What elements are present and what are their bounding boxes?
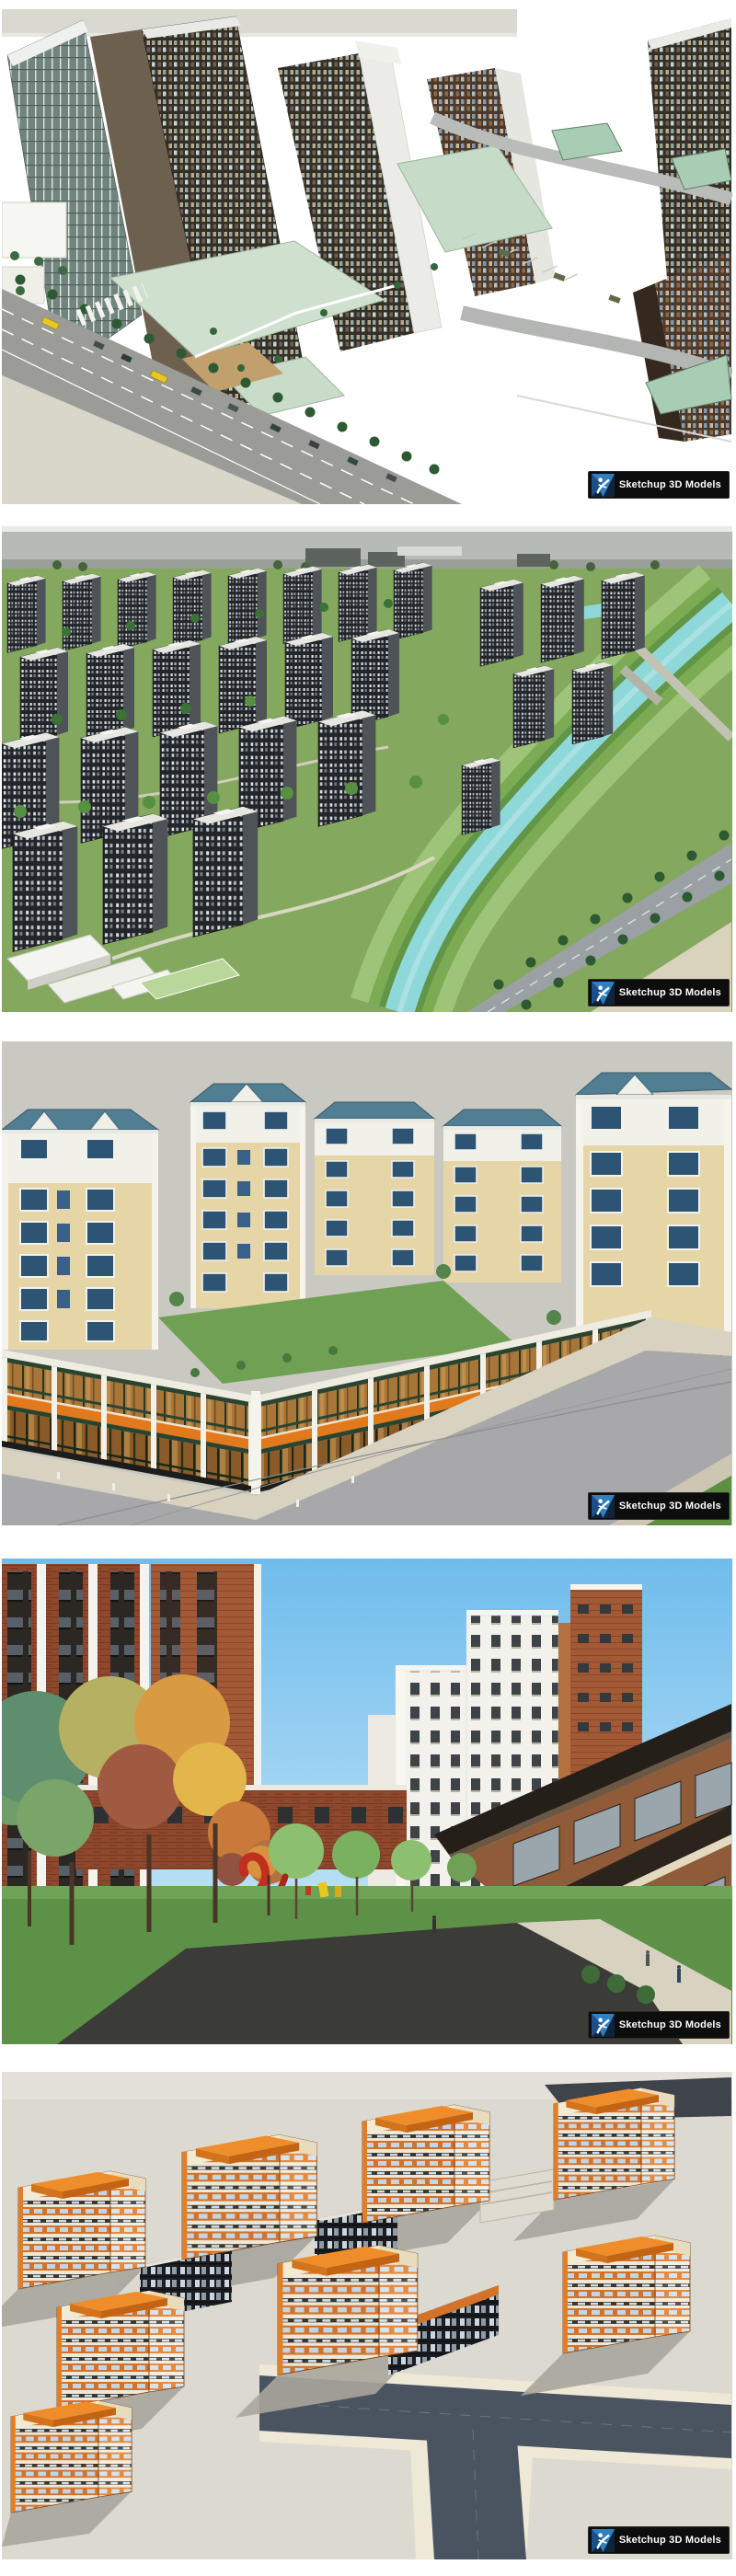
render-street-view-autumn[interactable]: Sketchup 3D Models <box>2 1558 732 2044</box>
apartment-building-mid2 <box>443 1110 561 1282</box>
apartment-building-left <box>2 1110 158 1350</box>
render-4-canvas <box>2 1558 732 2044</box>
watermark-badge: Sketchup 3D Models <box>588 1492 730 1520</box>
sketchup-logo-icon <box>592 2529 615 2552</box>
watermark-badge: Sketchup 3D Models <box>588 471 730 499</box>
watermark-badge: Sketchup 3D Models <box>588 2526 730 2554</box>
apartment-building-center <box>190 1084 305 1308</box>
render-aerial-orange-blocks[interactable]: Sketchup 3D Models <box>2 2072 732 2559</box>
watermark-label: Sketchup 3D Models <box>619 479 721 490</box>
image-gallery: Sketchup 3D Models <box>0 0 736 2576</box>
watermark-badge: Sketchup 3D Models <box>588 979 730 1006</box>
render-2-canvas <box>2 526 732 1012</box>
render-3-canvas <box>2 1041 732 1525</box>
render-5-canvas <box>2 2072 732 2559</box>
watermark-label: Sketchup 3D Models <box>619 987 721 998</box>
sketchup-logo-icon <box>592 2014 615 2037</box>
render-aerial-commercial-highrise[interactable]: Sketchup 3D Models <box>2 9 732 504</box>
render-aerial-residential-river[interactable]: Sketchup 3D Models <box>2 526 732 1012</box>
apartment-building-mid <box>315 1102 434 1275</box>
sketchup-logo-icon <box>592 474 615 497</box>
watermark-label: Sketchup 3D Models <box>619 1501 721 1512</box>
watermark-label: Sketchup 3D Models <box>619 2535 721 2546</box>
watermark-badge: Sketchup 3D Models <box>588 2011 730 2039</box>
sketchup-logo-icon <box>592 982 615 1005</box>
render-1-canvas <box>2 9 732 504</box>
sketchup-logo-icon <box>592 1495 615 1518</box>
watermark-label: Sketchup 3D Models <box>619 2019 721 2030</box>
render-blueroof-apartments-retail[interactable]: Sketchup 3D Models <box>2 1041 732 1525</box>
